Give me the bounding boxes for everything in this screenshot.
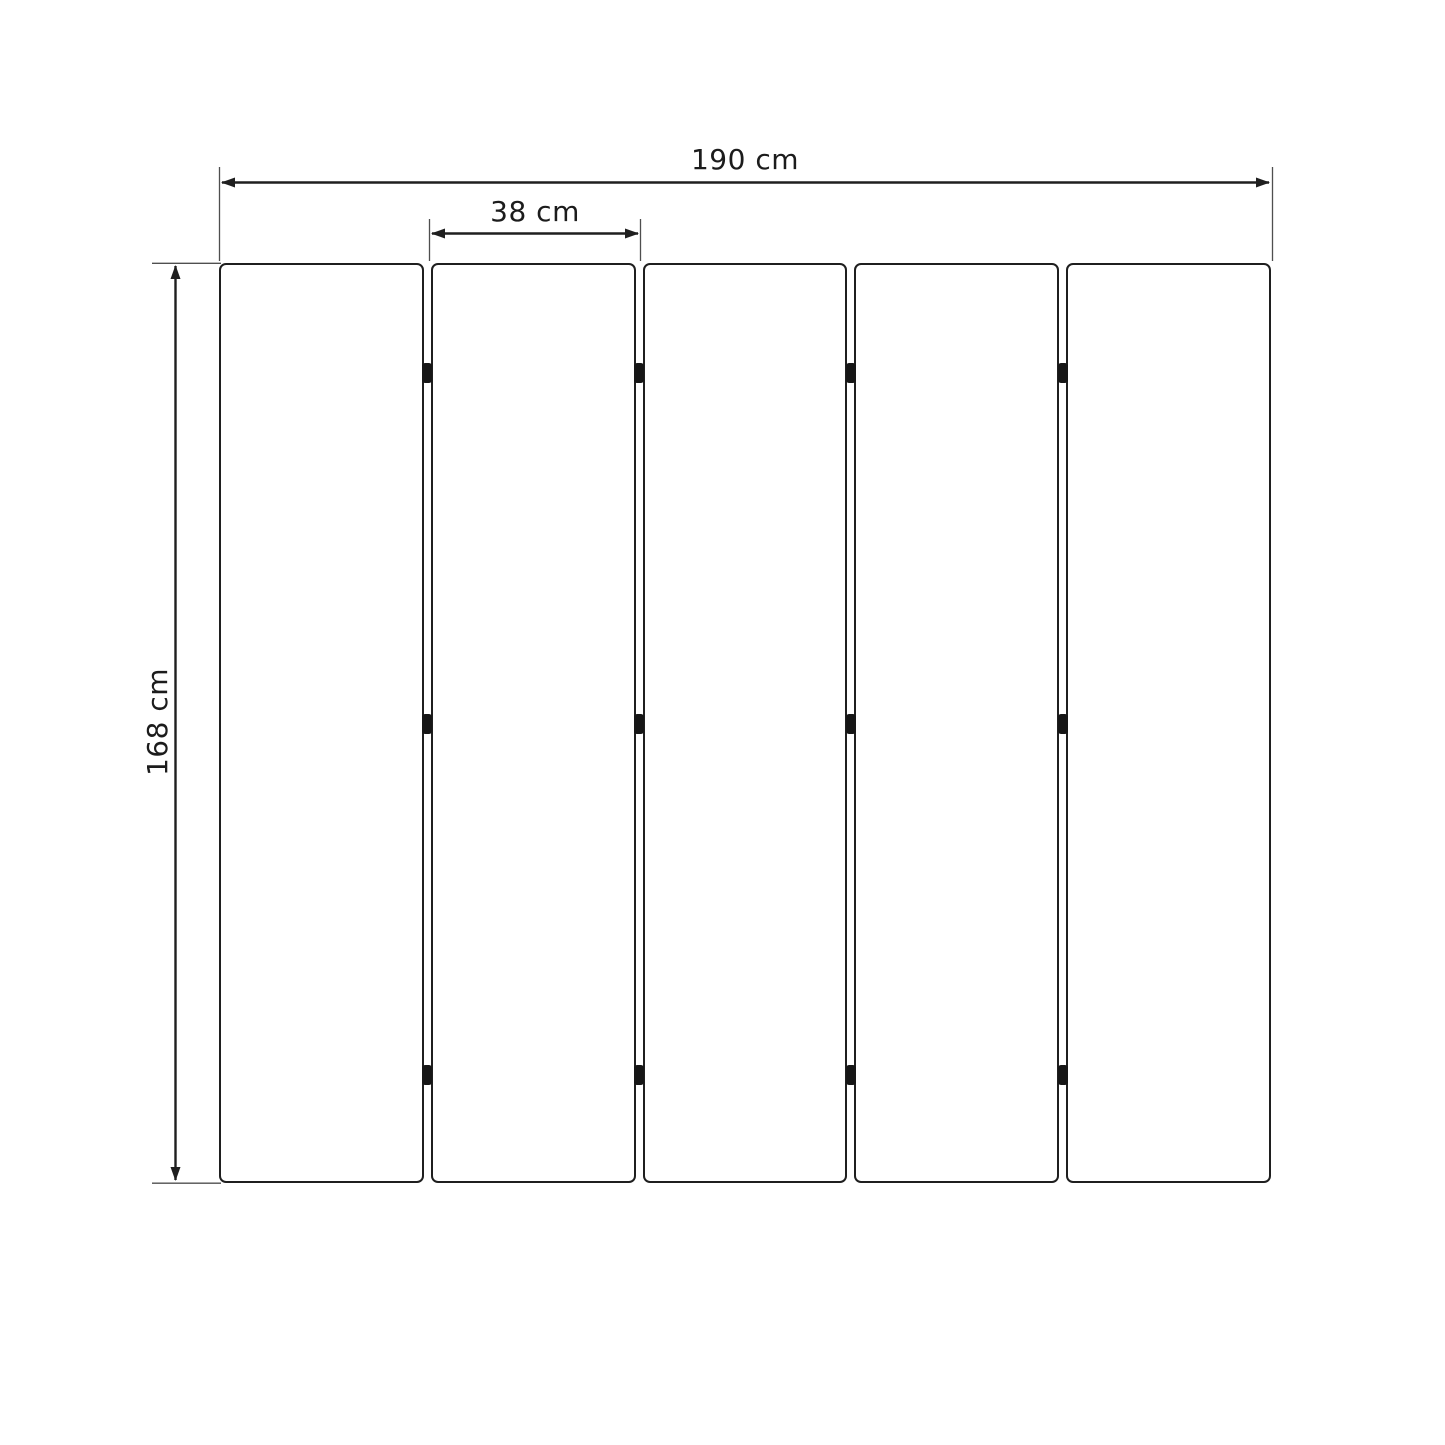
dimension-drawing: 190 cm 38 cm 168 cm xyxy=(0,0,1445,1445)
height-label: 168 cm xyxy=(141,668,174,776)
dimension-layer: 190 cm 38 cm 168 cm xyxy=(0,0,1445,1445)
panel-width-label: 38 cm xyxy=(490,195,580,228)
total-width-label: 190 cm xyxy=(691,143,799,176)
